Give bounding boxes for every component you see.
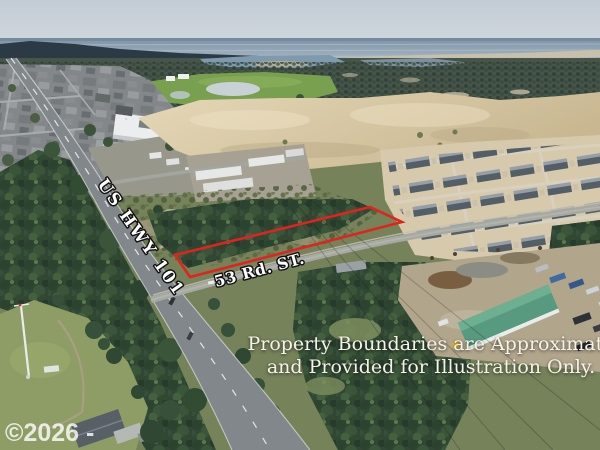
copyright-watermark: ©2026 - [5, 419, 94, 447]
aerial-photo: US HWY 101 53 Rd. ST. Property Boundarie… [0, 0, 600, 450]
disclaimer-line1: Property Boundaries are Approximate [247, 333, 600, 355]
aerial-photo-canvas: US HWY 101 53 Rd. ST. Property Boundarie… [0, 0, 600, 450]
disclaimer-line2: and Provided for Illustration Only. [267, 356, 595, 378]
